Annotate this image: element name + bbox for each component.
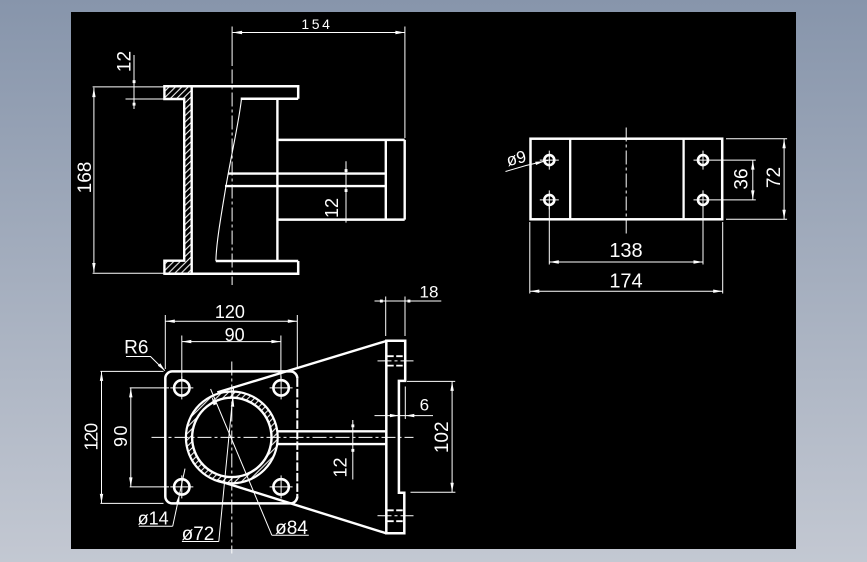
svg-text:ø72: ø72 xyxy=(182,524,215,545)
svg-text:18: 18 xyxy=(420,283,439,302)
svg-text:102: 102 xyxy=(432,421,453,453)
svg-text:36: 36 xyxy=(732,168,753,189)
svg-text:154: 154 xyxy=(301,16,332,32)
svg-text:120: 120 xyxy=(215,302,245,322)
svg-text:72: 72 xyxy=(764,167,785,188)
svg-text:90: 90 xyxy=(225,325,245,345)
svg-text:12: 12 xyxy=(331,457,351,477)
svg-text:174: 174 xyxy=(609,270,642,292)
svg-text:ø84: ø84 xyxy=(275,518,308,539)
svg-text:6: 6 xyxy=(420,396,429,415)
svg-text:120: 120 xyxy=(81,423,101,451)
svg-text:168: 168 xyxy=(75,162,96,194)
svg-text:12: 12 xyxy=(115,51,136,72)
svg-text:R6: R6 xyxy=(124,338,148,359)
svg-text:12: 12 xyxy=(322,198,342,218)
svg-text:90: 90 xyxy=(111,424,131,447)
svg-text:138: 138 xyxy=(609,240,642,262)
svg-text:ø14: ø14 xyxy=(138,509,169,529)
